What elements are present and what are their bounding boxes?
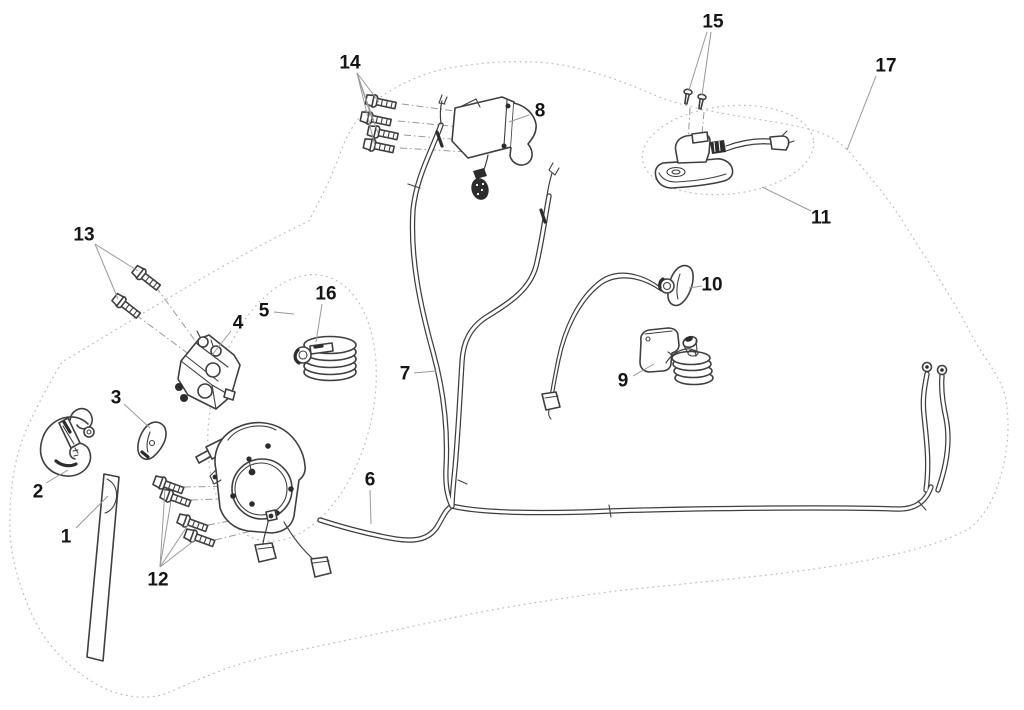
part-wire-bracket bbox=[640, 328, 713, 385]
leader-line-12 bbox=[160, 489, 165, 567]
callout-3-clip: 3 bbox=[111, 388, 122, 409]
leader-line-12 bbox=[160, 525, 188, 567]
part-contactor-switch bbox=[452, 97, 536, 202]
part-wiring-harness bbox=[320, 363, 948, 541]
callout-13-relay-bolts: 13 bbox=[73, 225, 94, 246]
callout-17-outline-boundary: 17 bbox=[875, 56, 896, 77]
part-coiled-cable bbox=[295, 337, 356, 381]
leader-line-7 bbox=[414, 371, 436, 373]
leader-line-17 bbox=[847, 76, 876, 150]
callout-4-relay-box: 4 bbox=[233, 313, 244, 334]
part-strap bbox=[87, 474, 119, 661]
leader-line-15 bbox=[702, 32, 711, 95]
callout-12-motor-bolts: 12 bbox=[147, 570, 168, 591]
part-switch-assembly bbox=[655, 131, 794, 188]
part-hook bbox=[41, 409, 94, 476]
callout-9-wire-bracket: 9 bbox=[618, 371, 629, 392]
callout-8-contactor-switch: 8 bbox=[535, 101, 546, 122]
part-contactor-bolts bbox=[360, 93, 399, 155]
callout-10-lever-switch: 10 bbox=[701, 275, 722, 296]
part-relay-bolts bbox=[111, 264, 162, 320]
part-relay-box bbox=[175, 331, 240, 409]
leader-line-5 bbox=[274, 312, 294, 314]
leader-line-13 bbox=[95, 244, 118, 299]
callout-6-wiring-harness: 6 bbox=[365, 470, 376, 491]
callout-11-switch-assembly: 11 bbox=[811, 208, 832, 229]
exploded-parts-diagram: 1234567891011121314151617 bbox=[0, 0, 1024, 710]
callout-2-hook: 2 bbox=[33, 482, 44, 503]
callout-5-coil-group: 5 bbox=[259, 301, 270, 322]
leader-line-3 bbox=[124, 404, 150, 428]
leader-line-12 bbox=[160, 540, 195, 567]
callout-15-screws: 15 bbox=[702, 12, 724, 33]
callout-1-strap: 1 bbox=[61, 527, 72, 548]
leader-line-14 bbox=[357, 73, 375, 146]
callout-14-contactor-bolts: 14 bbox=[339, 53, 361, 74]
boundary-outline bbox=[10, 62, 1008, 697]
leader-line-6 bbox=[370, 490, 371, 524]
part-clip bbox=[138, 422, 166, 459]
callout-7-power-cables: 7 bbox=[400, 364, 411, 385]
part-power-cables bbox=[408, 95, 559, 506]
callout-16-coiled-cable: 16 bbox=[315, 284, 336, 305]
leader-line-11 bbox=[762, 187, 811, 211]
part-winch-motor bbox=[196, 423, 331, 577]
leader-line-13 bbox=[95, 244, 138, 271]
